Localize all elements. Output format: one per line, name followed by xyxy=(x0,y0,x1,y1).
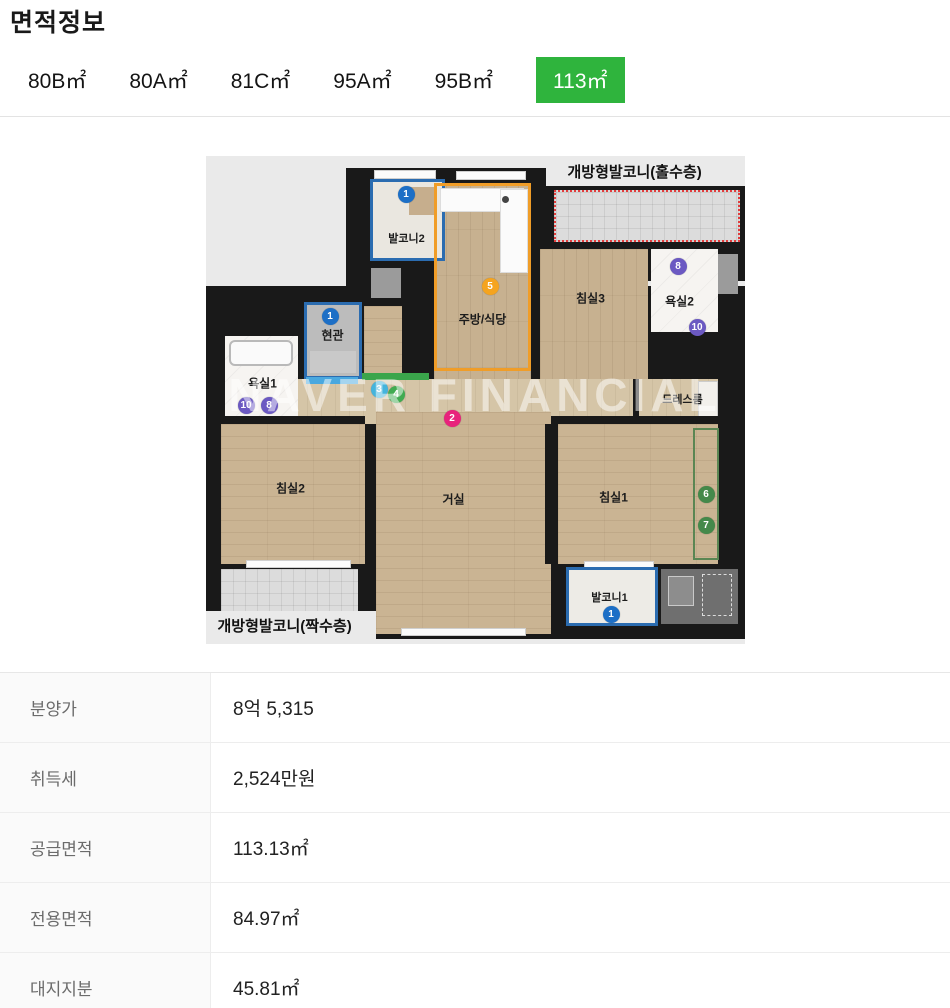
tab-95b[interactable]: 95B㎡ xyxy=(435,65,493,95)
row-value: 8억 5,315 xyxy=(211,673,950,742)
table-row: 대지지분 45.81㎡ xyxy=(0,953,950,1008)
table-row: 분양가 8억 5,315 xyxy=(0,673,950,743)
marker-bath2-10: 10 xyxy=(689,319,706,336)
room-label-entrance: 현관 xyxy=(321,327,343,344)
wall xyxy=(365,424,376,564)
window xyxy=(401,628,526,636)
open-balcony-top xyxy=(554,190,740,242)
row-label: 취득세 xyxy=(0,743,211,812)
bathtub xyxy=(229,340,293,366)
open-balcony-top-label: 개방형발코니(홀수층) xyxy=(568,161,702,182)
marker-bedroom1-6: 6 xyxy=(698,486,715,503)
tab-95a[interactable]: 95A㎡ xyxy=(333,65,391,95)
room-label-living: 거실 xyxy=(442,491,464,508)
area-info-table: 분양가 8억 5,315 취득세 2,524만원 공급면적 113.13㎡ 전용… xyxy=(0,672,950,1008)
utility-unit xyxy=(668,576,694,606)
open-balcony-bottom-label: 개방형발코니(짝수층) xyxy=(218,615,352,636)
room-label-bedroom1: 침실1 xyxy=(599,489,628,506)
row-value: 2,524만원 xyxy=(211,743,950,812)
row-value: 113.13㎡ xyxy=(211,813,950,882)
marker-kitchen-5: 5 xyxy=(482,278,499,295)
tab-81c[interactable]: 81C㎡ xyxy=(231,65,291,95)
tabs-divider xyxy=(0,116,950,117)
tab-113-active[interactable]: 113㎡ xyxy=(536,57,624,103)
tab-80b[interactable]: 80B㎡ xyxy=(28,65,86,95)
room-label-balcony1: 발코니1 xyxy=(591,589,627,605)
duct-shaft xyxy=(718,254,738,294)
row-label: 분양가 xyxy=(0,673,211,742)
page-title: 면적정보 xyxy=(0,0,950,39)
marker-balcony2-1: 1 xyxy=(398,186,415,203)
table-row: 취득세 2,524만원 xyxy=(0,743,950,813)
marker-bedroom1-7: 7 xyxy=(698,517,715,534)
row-value: 84.97㎡ xyxy=(211,883,950,952)
room-living xyxy=(376,412,551,634)
open-balcony-bottom xyxy=(221,569,358,611)
wall xyxy=(545,424,558,564)
room-bedroom3 xyxy=(540,249,648,379)
row-label: 전용면적 xyxy=(0,883,211,952)
duct-shaft xyxy=(371,268,401,298)
marker-bath2-8: 8 xyxy=(670,258,687,275)
utility-unit-dashed xyxy=(702,574,732,616)
row-label: 공급면적 xyxy=(0,813,211,882)
room-label-bedroom2: 침실2 xyxy=(276,480,305,497)
marker-entrance-1: 1 xyxy=(322,308,339,325)
table-row: 전용면적 84.97㎡ xyxy=(0,883,950,953)
row-label: 대지지분 xyxy=(0,953,211,1008)
marker-balcony1-1: 1 xyxy=(603,606,620,623)
kitchen-sink xyxy=(502,196,509,203)
entrance-closet xyxy=(364,306,402,374)
tab-80a[interactable]: 80A㎡ xyxy=(129,65,187,95)
window xyxy=(456,171,526,180)
row-value: 45.81㎡ xyxy=(211,953,950,1008)
table-row: 공급면적 113.13㎡ xyxy=(0,813,950,883)
utility-room xyxy=(661,569,738,624)
watermark-text: NAVER FINANCIAL xyxy=(206,368,745,422)
room-label-kitchen: 주방/식당 xyxy=(459,311,507,328)
room-label-bathroom2: 욕실2 xyxy=(665,293,694,310)
window xyxy=(374,170,436,179)
window xyxy=(246,560,351,568)
area-tabs: 80B㎡ 80A㎡ 81C㎡ 95A㎡ 95B㎡ 113㎡ xyxy=(0,58,950,102)
room-label-bedroom3: 침실3 xyxy=(576,290,605,307)
room-label-balcony2: 발코니2 xyxy=(388,230,424,246)
floorplan-image: 개방형발코니(홀수층) 발코니2 주방/식당 침실3 욕실2 드레스룸 현관 욕… xyxy=(206,156,745,644)
